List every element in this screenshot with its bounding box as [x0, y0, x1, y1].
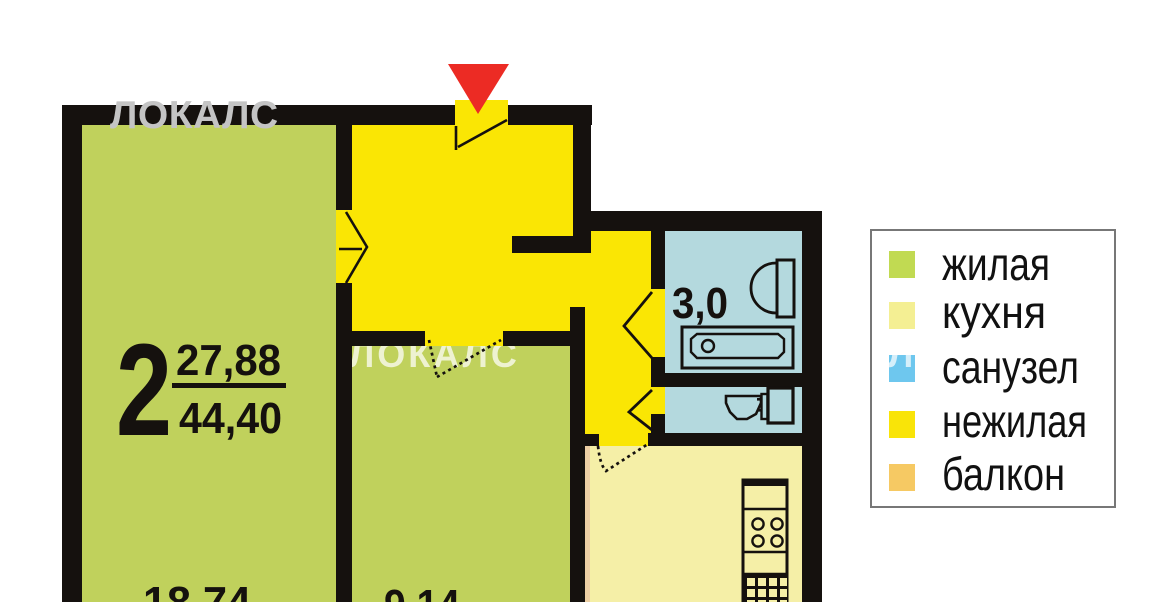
svg-text:балкон: балкон	[942, 448, 1065, 500]
svg-text:3,0: 3,0	[672, 279, 728, 328]
svg-text:9,14: 9,14	[384, 581, 460, 602]
svg-text:18,74: 18,74	[143, 578, 252, 602]
svg-text:санузел: санузел	[942, 341, 1079, 393]
svg-text:44,40: 44,40	[179, 394, 282, 443]
svg-text:кухня: кухня	[942, 286, 1046, 338]
svg-text:2: 2	[116, 316, 172, 463]
svg-text:ЛОКАЛС: ЛОКАЛС	[110, 94, 279, 137]
svg-text:нежилая: нежилая	[942, 395, 1087, 447]
svg-text:жилая: жилая	[942, 238, 1050, 290]
svg-text:ЛО: ЛО	[888, 334, 945, 375]
svg-text:27,88: 27,88	[176, 336, 281, 385]
